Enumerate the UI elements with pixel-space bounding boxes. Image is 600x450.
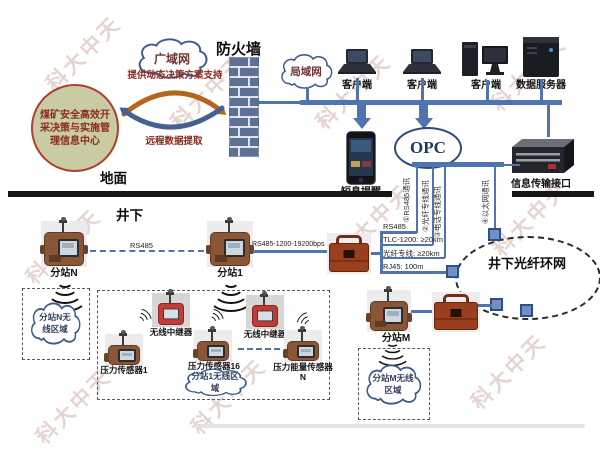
connector-line xyxy=(547,105,550,137)
underground-zone-label: 井下 xyxy=(116,204,143,224)
device-screen xyxy=(58,239,79,258)
down-arrow-icon xyxy=(353,118,371,129)
surface-zone-label: 地面 xyxy=(100,167,127,187)
connector-line xyxy=(504,164,520,167)
wall-to-bus-line xyxy=(259,101,305,104)
device-body xyxy=(434,302,478,330)
spec-tlc: TLC-1200: ≥20km xyxy=(383,235,443,244)
zone-n-cloud: 分站N无线区域 xyxy=(27,300,83,346)
spec-rs485: RS485 xyxy=(383,222,406,231)
smartphone-icon xyxy=(346,131,376,185)
zone-m-label: 分站M无线区域 xyxy=(362,362,424,406)
diagram-canvas: 科大中天 科大中天 科大中天 科大中天 科大中天 科大中天 科大中天 科大中天 … xyxy=(0,0,600,450)
device-body xyxy=(108,345,140,365)
repeater-2-label: 无线中继器 xyxy=(243,330,287,340)
device-screen xyxy=(118,349,136,361)
rs485-dashed-line xyxy=(90,250,204,252)
zone-m-cloud: 分站M无线区域 xyxy=(362,362,424,406)
fiber-ring-label: 井下光纤环网 xyxy=(466,253,588,272)
device-body xyxy=(252,305,278,327)
spec-rj45: RJ45: 100m xyxy=(383,262,423,271)
lan-cloud-label: 局域网 xyxy=(277,52,335,90)
down-arrow-icon xyxy=(357,105,366,119)
converter-1-device xyxy=(329,235,369,272)
spec-fiber: 光纤专线: ≥20km xyxy=(383,248,440,259)
scan-shadow xyxy=(195,424,585,428)
converter-2-device xyxy=(434,294,478,330)
device-screen xyxy=(207,345,225,357)
rs485-link-line xyxy=(253,250,329,253)
device-body xyxy=(197,341,229,361)
zone-1-cloud: 分站1无线区域 xyxy=(180,367,250,397)
lan-cloud: 局域网 xyxy=(277,52,335,90)
sensor-dashed-line xyxy=(238,348,280,350)
extract-arrow-label: 远程数据提取 xyxy=(136,136,212,147)
branch-rs485 xyxy=(380,231,417,234)
connector-line xyxy=(411,310,434,313)
substation-1-device xyxy=(207,221,253,267)
watermark: 科大中天 xyxy=(463,326,552,415)
server-icon xyxy=(521,35,561,79)
repeater-1-device xyxy=(152,293,190,327)
zone-1-label: 分站1无线区域 xyxy=(180,367,250,397)
device-body xyxy=(370,301,408,331)
device-body xyxy=(329,243,369,272)
repeater-1-label: 无线中继器 xyxy=(149,328,193,338)
rs485-bus-label: RS485 xyxy=(130,241,153,250)
info-interface-label: 信息传输接口 xyxy=(503,179,579,191)
zone-n-label: 分站N无线区域 xyxy=(27,300,83,346)
device-body xyxy=(210,232,250,266)
desktop-icon xyxy=(462,42,510,78)
substation-m-device xyxy=(367,290,411,332)
ring-node-icon xyxy=(446,265,459,278)
device-body xyxy=(287,341,319,361)
connector-line xyxy=(540,79,543,100)
repeater-2-device xyxy=(246,295,284,329)
comm-label-2: ②光纤专线通讯 xyxy=(421,174,431,238)
comm-bar-line xyxy=(412,162,504,167)
connector-line xyxy=(306,87,309,100)
device-body xyxy=(158,303,184,325)
comm-line-ethernet xyxy=(494,167,497,233)
lan-bus-line xyxy=(300,100,562,105)
sensor-16-device xyxy=(194,330,232,362)
ring-node-icon xyxy=(520,304,533,317)
branch-tlc xyxy=(380,244,433,247)
device-screen xyxy=(224,239,245,258)
comm-line-rs485 xyxy=(416,167,419,233)
sensor-1-label: 压力传感器1 xyxy=(100,366,148,376)
sensor-n-device xyxy=(284,330,322,362)
comm-line-phone xyxy=(444,167,447,258)
laptop-icon xyxy=(336,49,378,77)
branch-rj45 xyxy=(380,271,452,274)
device-screen xyxy=(257,310,273,321)
rs485-full-label: RS485-1200-19200bps xyxy=(252,241,324,248)
down-arrow-icon xyxy=(419,105,428,119)
device-body xyxy=(44,232,84,266)
substation-n-device xyxy=(41,221,87,267)
connector-line xyxy=(478,304,492,307)
sensor-1-device xyxy=(105,334,143,366)
ring-node-icon xyxy=(488,228,501,241)
sensor-n-label: 压力能量传感器N xyxy=(272,363,334,383)
comm-label-4: ④以太网通讯 xyxy=(481,174,491,230)
ground-divider xyxy=(512,191,594,197)
info-interface-icon xyxy=(506,137,576,177)
device-screen xyxy=(163,308,179,319)
connector-line xyxy=(421,78,424,100)
connector-line xyxy=(356,78,359,100)
cycle-arrows-icon xyxy=(114,82,232,136)
info-center-circle: 煤矿安全高效开采决策与实施管理信息中心 xyxy=(31,84,119,172)
support-arrow-label: 提供动态决策方案支持 xyxy=(117,70,233,81)
comm-label-1: ①RS485通讯 xyxy=(402,170,412,230)
device-screen xyxy=(297,345,315,357)
laptop-icon xyxy=(401,49,443,77)
connector-line xyxy=(486,80,489,100)
firewall-label: 防火墙 xyxy=(216,38,261,59)
ground-divider xyxy=(8,191,392,197)
firewall-wall-icon xyxy=(229,57,259,157)
